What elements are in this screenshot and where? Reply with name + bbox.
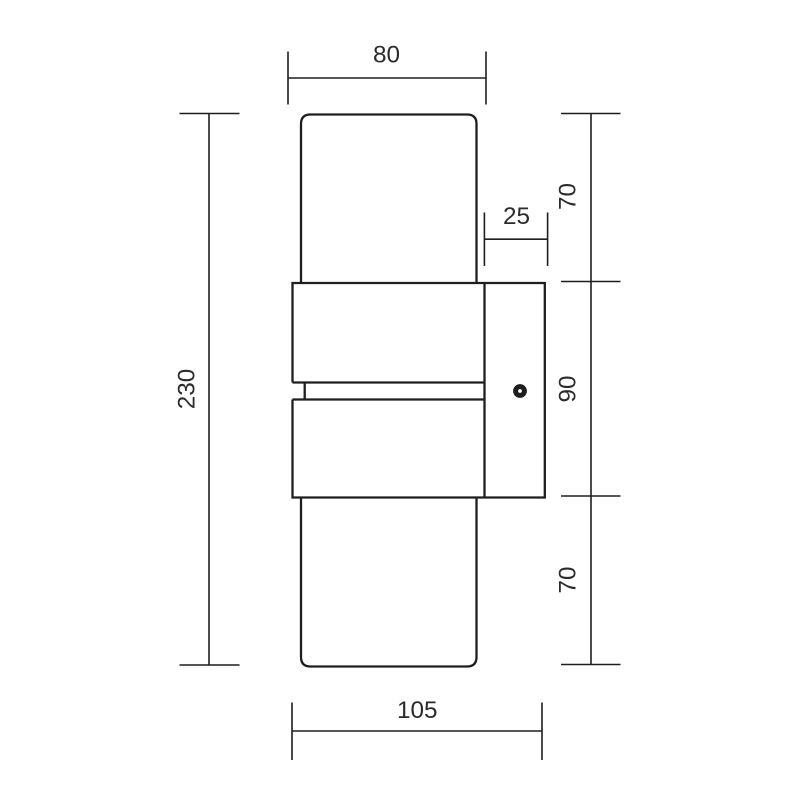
svg-text:25: 25 <box>503 203 530 230</box>
svg-text:90: 90 <box>555 375 582 402</box>
svg-text:230: 230 <box>174 369 201 410</box>
svg-text:70: 70 <box>555 566 582 593</box>
svg-text:105: 105 <box>397 697 438 724</box>
svg-text:80: 80 <box>373 42 400 69</box>
svg-text:70: 70 <box>555 183 582 210</box>
